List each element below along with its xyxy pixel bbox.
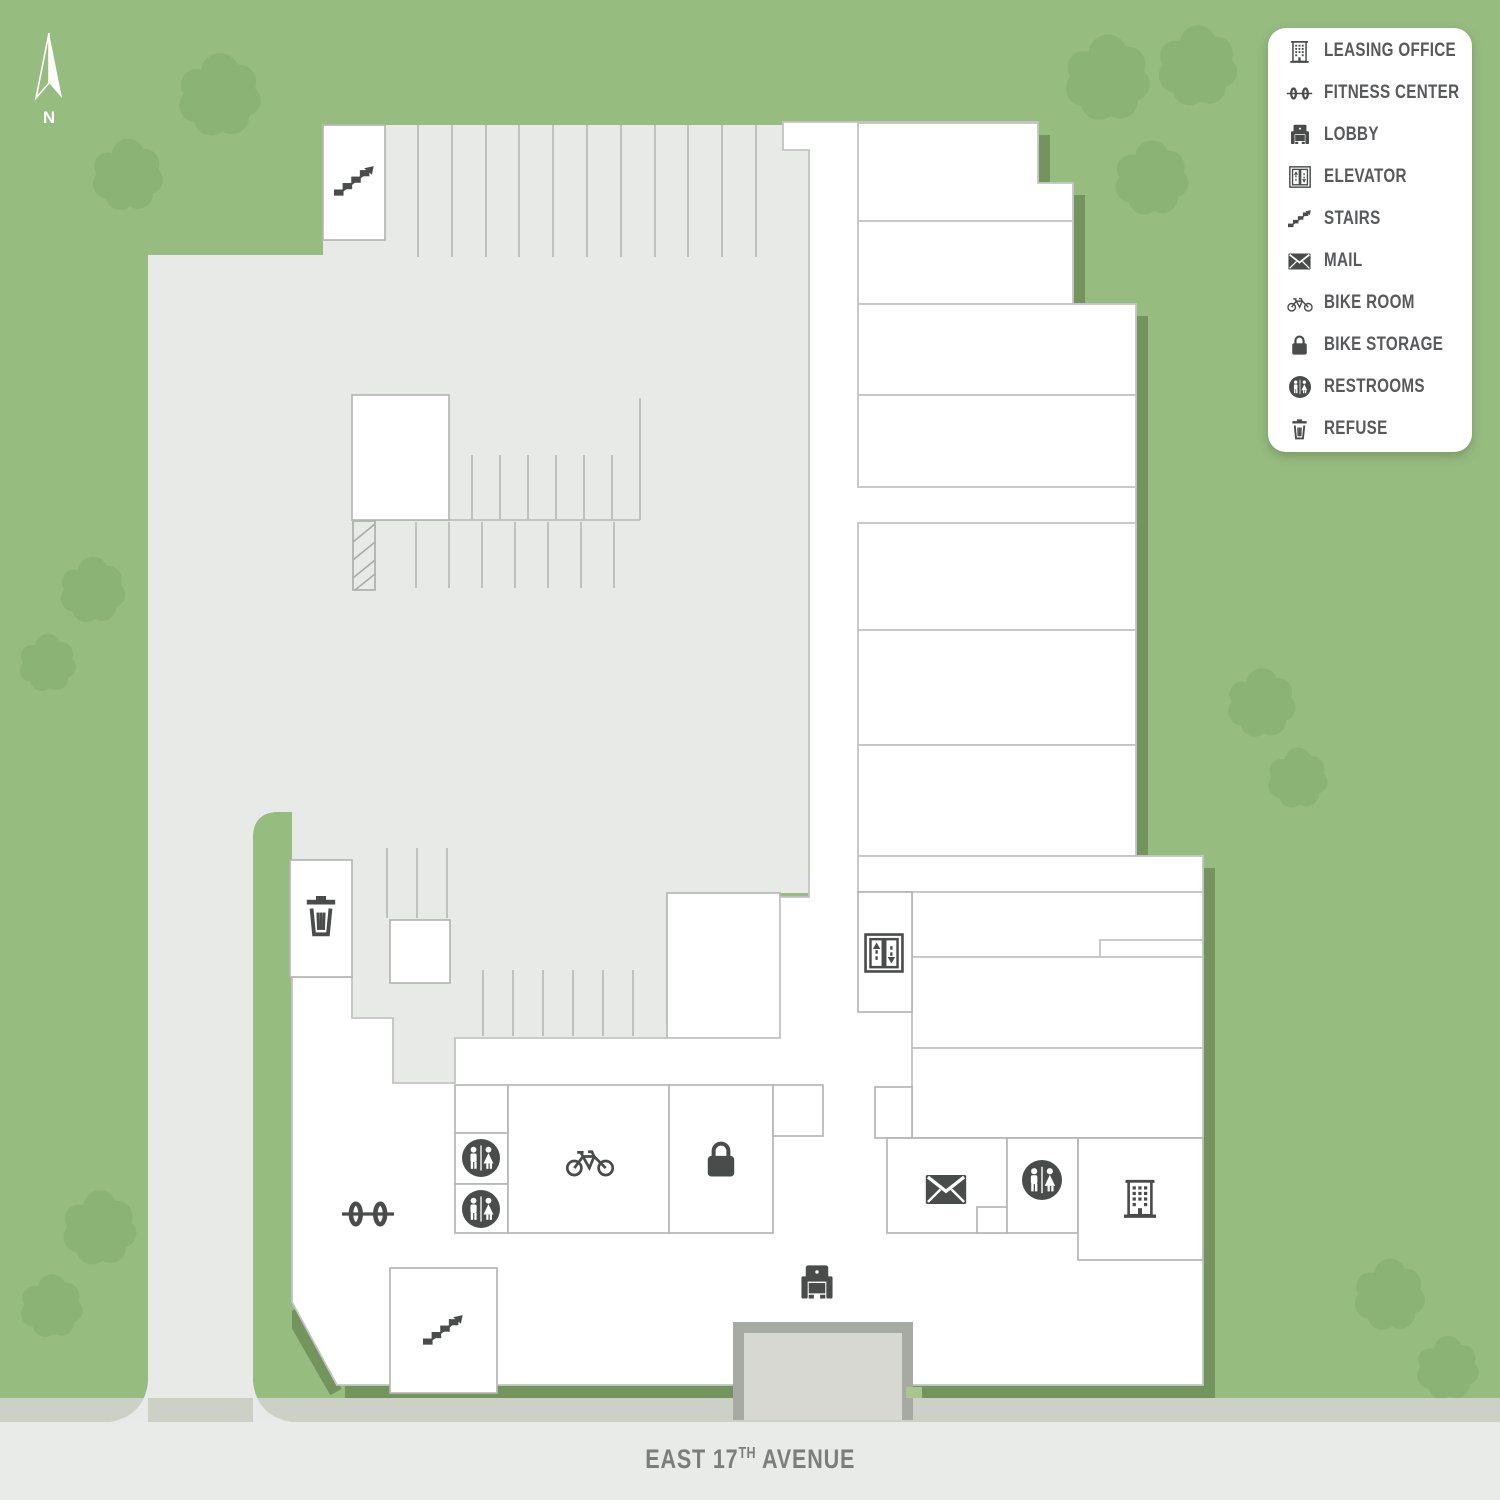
entrance-walkway xyxy=(733,1322,922,1420)
apartment-unit xyxy=(858,304,1136,395)
legend-panel: LEASING OFFICE FITNESS CENTER LOBBY ELEV… xyxy=(1268,28,1472,452)
mail-icon xyxy=(926,1175,966,1204)
legend-label: BIKE ROOM xyxy=(1324,292,1415,314)
legend-item-lobby: LOBBY xyxy=(1286,114,1472,156)
restrooms-icon xyxy=(462,1190,500,1228)
legend-label: STAIRS xyxy=(1324,208,1381,230)
legend-item-leasing-office: LEASING OFFICE xyxy=(1286,30,1472,72)
legend-item-bike-room: BIKE ROOM xyxy=(1286,282,1472,324)
apartment-unit xyxy=(858,523,1136,630)
apartment-unit xyxy=(858,630,1136,745)
legend-label: REFUSE xyxy=(1324,418,1388,440)
north-arrow-outline xyxy=(36,33,49,98)
apartment-unit xyxy=(912,957,1203,1048)
elevator-icon xyxy=(866,935,903,972)
legend-label: RESTROOMS xyxy=(1324,376,1425,398)
parking-structure-room xyxy=(352,395,449,520)
fitness-center-icon xyxy=(1286,80,1313,106)
north-label: N xyxy=(43,108,55,127)
elevator-icon xyxy=(1286,164,1313,190)
restrooms-icon xyxy=(462,1139,500,1177)
legend-item-elevator: ELEVATOR xyxy=(1286,156,1472,198)
legend-item-restrooms: RESTROOMS xyxy=(1286,366,1472,408)
site-plan: N LEASING OFFICE FITNESS CENTER LOBBY EL… xyxy=(0,0,1500,1500)
compass: N xyxy=(26,28,72,128)
legend-item-refuse: REFUSE xyxy=(1286,408,1472,450)
legend-item-fitness-center: FITNESS CENTER xyxy=(1286,72,1472,114)
street-name-ordinal: TH xyxy=(738,1445,756,1462)
legend-item-mail: MAIL xyxy=(1286,240,1472,282)
street-name-suffix: AVENUE xyxy=(756,1444,855,1474)
refuse-icon xyxy=(1286,416,1313,442)
leasing-office-icon xyxy=(1286,38,1313,64)
mail-room-notch xyxy=(977,1207,1007,1233)
hatched-strip xyxy=(353,521,375,590)
mail-icon xyxy=(1286,248,1313,274)
restrooms-icon xyxy=(1286,374,1313,400)
hall-cell xyxy=(773,1085,823,1136)
apartment-unit xyxy=(858,856,1203,892)
street-name-text: EAST 17 xyxy=(645,1444,738,1474)
parking-side-room xyxy=(667,893,780,1038)
apartment-unit xyxy=(858,221,1073,304)
legend-item-bike-storage: BIKE STORAGE xyxy=(1286,324,1472,366)
legend-label: FITNESS CENTER xyxy=(1324,82,1459,104)
apartment-unit xyxy=(858,745,1136,856)
legend-label: BIKE STORAGE xyxy=(1324,334,1443,356)
legend-label: LOBBY xyxy=(1324,124,1379,146)
street-name: EAST 17TH AVENUE xyxy=(0,1444,1500,1475)
bike-room xyxy=(508,1085,669,1233)
parking-utility-room xyxy=(390,920,450,983)
stairs-icon xyxy=(1286,206,1313,232)
apartment-unit xyxy=(858,395,1136,487)
apartment-unit xyxy=(912,1048,1203,1138)
utility-room xyxy=(875,1087,912,1138)
legend-label: ELEVATOR xyxy=(1324,166,1407,188)
leasing-office-icon xyxy=(1124,1181,1156,1216)
legend-label: MAIL xyxy=(1324,250,1362,272)
legend-label: LEASING OFFICE xyxy=(1324,40,1456,62)
bike-storage-icon xyxy=(1286,332,1313,358)
planting-strip xyxy=(253,812,292,1398)
hall-cell xyxy=(455,1085,508,1133)
bike-room-icon xyxy=(1286,290,1313,316)
restrooms-icon xyxy=(1022,1160,1062,1200)
north-arrow-icon xyxy=(49,33,62,98)
lobby-icon xyxy=(1286,122,1313,148)
legend-item-stairs: STAIRS xyxy=(1286,198,1472,240)
